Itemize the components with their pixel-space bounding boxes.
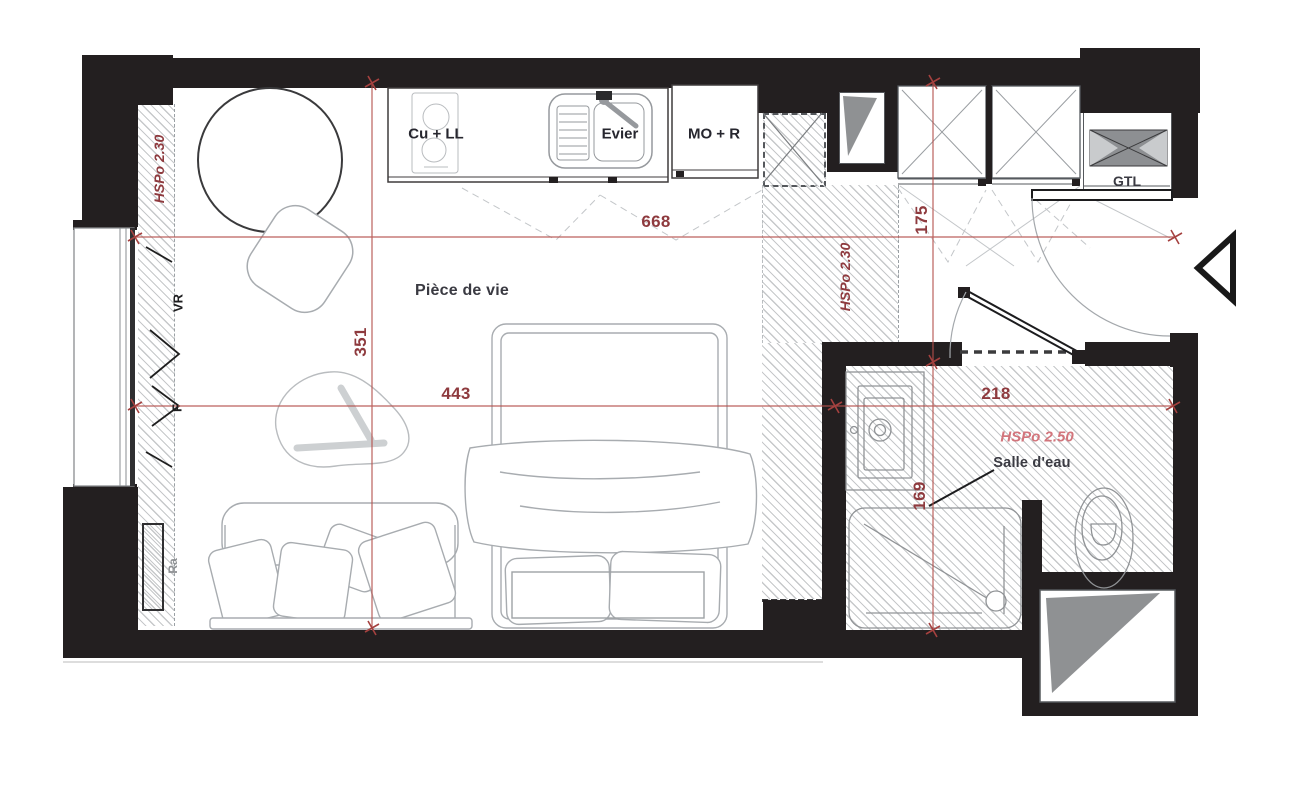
dim-living-width: 443 (441, 384, 470, 404)
label-sink: Evier (602, 126, 639, 143)
floor-plan: Pièce de vie Salle d'eau Cu + LL Evier M… (0, 0, 1316, 800)
bathroom-door (950, 287, 1088, 364)
entrance-arrow-icon (1198, 236, 1233, 300)
entry-door (1032, 190, 1172, 336)
dim-entry-width: 175 (912, 205, 932, 234)
plan-drawing (0, 0, 1316, 800)
wardrobe-right (978, 86, 1080, 186)
label-cooktop: Cu + LL (408, 126, 463, 143)
shutter-symbol (146, 247, 179, 467)
label-gtl: GTL (1113, 173, 1141, 189)
label-ceiling-height-left: HSPo 2.30 (151, 135, 167, 203)
bed (465, 324, 756, 628)
label-bathroom: Salle d'eau (993, 455, 1070, 471)
duct-wedge-icon (843, 96, 877, 156)
label-radiator: Ra (166, 558, 180, 573)
dim-living-length: 351 (351, 327, 371, 356)
label-window: F (170, 404, 185, 412)
bathroom-leader-line (929, 470, 994, 506)
window-unit (74, 228, 135, 486)
pouf (276, 372, 409, 467)
toilet (1075, 488, 1133, 588)
dim-total-width: 668 (641, 212, 670, 232)
label-living-room: Pièce de vie (415, 282, 509, 300)
label-shutter: VR (171, 294, 186, 312)
cabinet-projection-lines (462, 188, 1090, 262)
duct-square-cross (763, 113, 822, 183)
label-ceiling-height-bathroom: HSPo 2.50 (1000, 429, 1073, 446)
label-ceiling-height-entry: HSPo 2.30 (837, 243, 853, 311)
label-micro-fridge: MO + R (688, 126, 740, 143)
shaft-wedge-icon (1046, 593, 1160, 693)
wardrobe-left (898, 86, 986, 184)
shower (849, 508, 1021, 628)
dim-bathroom-length: 169 (910, 481, 930, 510)
sofa (207, 503, 472, 629)
dim-bathroom-width: 218 (981, 384, 1010, 404)
vanity-sink (846, 372, 924, 490)
round-table (198, 88, 342, 232)
